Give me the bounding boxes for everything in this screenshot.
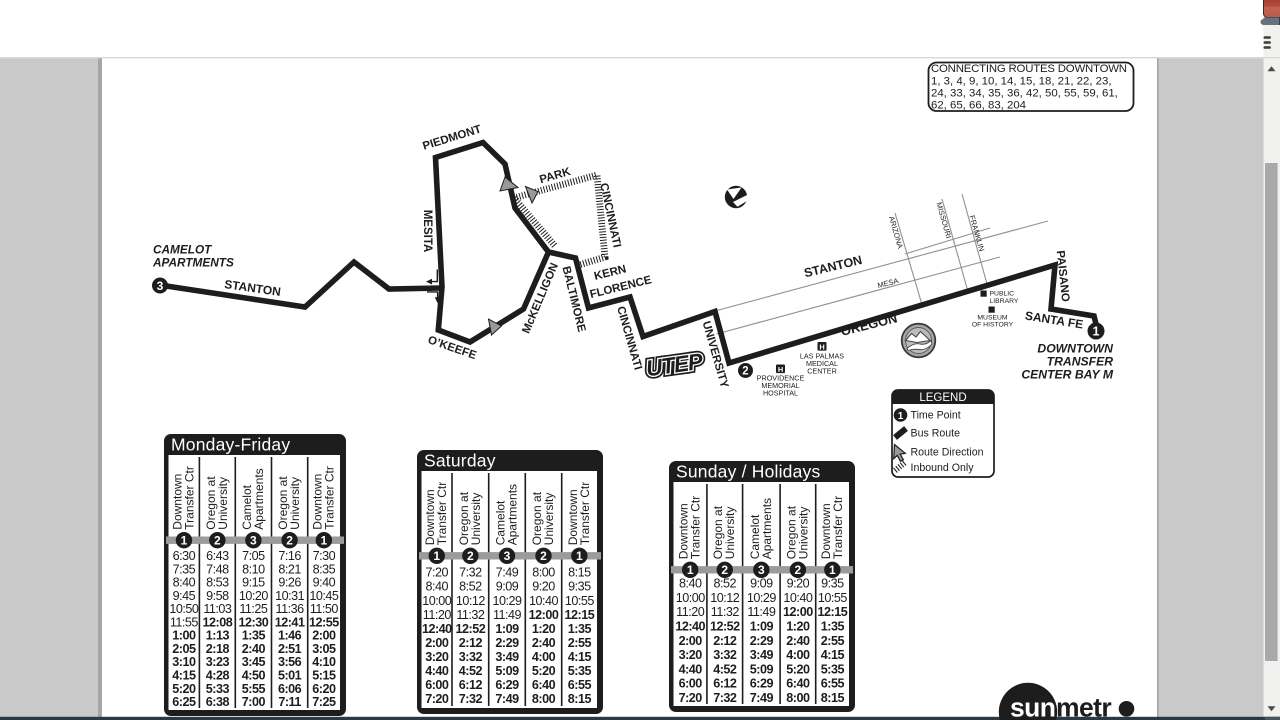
svg-text:1: 1 bbox=[576, 549, 583, 563]
svg-text:12:52: 12:52 bbox=[710, 620, 740, 634]
svg-text:5:55: 5:55 bbox=[242, 682, 266, 696]
svg-text:10:29: 10:29 bbox=[492, 594, 522, 608]
svg-text:Time Point: Time Point bbox=[911, 410, 961, 422]
svg-text:Bus Route: Bus Route bbox=[911, 428, 961, 440]
svg-text:Transfer Ctr: Transfer Ctr bbox=[831, 496, 845, 560]
svg-text:3: 3 bbox=[504, 549, 511, 563]
svg-text:University: University bbox=[288, 477, 302, 530]
svg-text:Transfer Ctr: Transfer Ctr bbox=[182, 466, 196, 530]
svg-text:11:20: 11:20 bbox=[676, 605, 705, 619]
svg-text:12:00: 12:00 bbox=[529, 608, 559, 622]
svg-text:3:32: 3:32 bbox=[713, 648, 737, 662]
svg-text:11:32: 11:32 bbox=[456, 608, 485, 622]
svg-text:5:09: 5:09 bbox=[750, 662, 774, 676]
svg-text:11:36: 11:36 bbox=[276, 602, 305, 616]
svg-text:7:11: 7:11 bbox=[278, 695, 301, 709]
svg-text:3:23: 3:23 bbox=[206, 655, 230, 669]
svg-text:6:25: 6:25 bbox=[172, 695, 196, 709]
svg-text:TRANSFER: TRANSFER bbox=[1047, 355, 1114, 369]
svg-text:11:32: 11:32 bbox=[711, 605, 740, 619]
svg-text:6:40: 6:40 bbox=[532, 678, 556, 692]
svg-text:1:20: 1:20 bbox=[786, 620, 810, 634]
svg-text:metr: metr bbox=[1056, 693, 1111, 720]
svg-text:1:09: 1:09 bbox=[495, 622, 519, 636]
svg-text:24, 33, 34, 35, 36, 42, 50, 55: 24, 33, 34, 35, 36, 42, 50, 55, 59, 61, bbox=[931, 88, 1118, 100]
svg-text:1: 1 bbox=[687, 563, 694, 577]
svg-text:11:49: 11:49 bbox=[747, 605, 776, 619]
svg-text:3:20: 3:20 bbox=[425, 650, 449, 664]
svg-text:6:43: 6:43 bbox=[206, 549, 229, 563]
svg-text:10:55: 10:55 bbox=[565, 594, 595, 608]
svg-text:1:00: 1:00 bbox=[172, 629, 196, 643]
svg-text:Apartments: Apartments bbox=[505, 484, 519, 545]
svg-text:1:09: 1:09 bbox=[750, 620, 774, 634]
svg-text:1:46: 1:46 bbox=[278, 629, 302, 643]
svg-text:6:30: 6:30 bbox=[173, 549, 196, 563]
svg-text:2:55: 2:55 bbox=[568, 636, 592, 650]
svg-text:2:40: 2:40 bbox=[532, 636, 556, 650]
svg-text:10:29: 10:29 bbox=[747, 591, 777, 605]
svg-text:1:35: 1:35 bbox=[242, 629, 266, 643]
svg-text:8:00: 8:00 bbox=[532, 692, 556, 706]
svg-text:12:55: 12:55 bbox=[309, 615, 339, 629]
svg-text:5:20: 5:20 bbox=[172, 682, 196, 696]
svg-text:3:49: 3:49 bbox=[750, 648, 774, 662]
svg-text:2: 2 bbox=[467, 549, 474, 563]
svg-text:1: 1 bbox=[181, 534, 188, 548]
svg-text:MESITA: MESITA bbox=[421, 210, 433, 253]
svg-text:8:52: 8:52 bbox=[714, 577, 737, 591]
svg-text:8:53: 8:53 bbox=[206, 576, 229, 590]
svg-text:CENTER BAY M: CENTER BAY M bbox=[1021, 368, 1113, 382]
svg-text:10:55: 10:55 bbox=[818, 591, 848, 605]
svg-text:LIBRARY: LIBRARY bbox=[990, 298, 1019, 305]
svg-text:6:00: 6:00 bbox=[679, 677, 703, 691]
svg-text:3:10: 3:10 bbox=[172, 655, 196, 669]
svg-text:7:30: 7:30 bbox=[313, 549, 336, 563]
svg-text:9:35: 9:35 bbox=[821, 577, 844, 591]
svg-text:5:35: 5:35 bbox=[568, 664, 592, 678]
svg-text:11:49: 11:49 bbox=[493, 608, 522, 622]
svg-text:3:56: 3:56 bbox=[278, 655, 302, 669]
svg-text:6:29: 6:29 bbox=[495, 678, 519, 692]
svg-text:12:40: 12:40 bbox=[422, 622, 452, 636]
svg-text:Saturday: Saturday bbox=[424, 451, 496, 471]
svg-text:1:13: 1:13 bbox=[206, 629, 230, 643]
svg-text:6:12: 6:12 bbox=[713, 677, 737, 691]
svg-text:12:15: 12:15 bbox=[565, 608, 595, 622]
svg-text:2:40: 2:40 bbox=[242, 642, 266, 656]
svg-text:9:09: 9:09 bbox=[750, 577, 773, 591]
svg-text:1: 1 bbox=[898, 411, 904, 422]
svg-text:7:20: 7:20 bbox=[425, 692, 449, 706]
svg-text:8:00: 8:00 bbox=[786, 691, 810, 705]
svg-text:8:10: 8:10 bbox=[242, 562, 265, 576]
svg-text:4:15: 4:15 bbox=[172, 669, 196, 683]
svg-text:Monday-Friday: Monday-Friday bbox=[171, 435, 290, 455]
svg-text:5:09: 5:09 bbox=[495, 664, 519, 678]
svg-text:2:40: 2:40 bbox=[786, 634, 810, 648]
svg-text:10:45: 10:45 bbox=[309, 589, 339, 603]
svg-text:1: 1 bbox=[321, 534, 328, 548]
svg-text:10:40: 10:40 bbox=[783, 591, 813, 605]
svg-text:2:05: 2:05 bbox=[172, 642, 196, 656]
svg-text:2: 2 bbox=[795, 563, 802, 577]
svg-text:3: 3 bbox=[157, 279, 164, 293]
svg-text:5:20: 5:20 bbox=[786, 662, 810, 676]
svg-text:11:25: 11:25 bbox=[239, 602, 268, 616]
svg-text:10:00: 10:00 bbox=[422, 594, 452, 608]
svg-text:7:35: 7:35 bbox=[173, 562, 196, 576]
svg-text:7:49: 7:49 bbox=[495, 692, 519, 706]
svg-text:4:50: 4:50 bbox=[242, 669, 266, 683]
svg-text:1:20: 1:20 bbox=[532, 622, 556, 636]
svg-text:10:12: 10:12 bbox=[456, 594, 486, 608]
svg-text:University: University bbox=[469, 493, 483, 546]
svg-text:LEGEND: LEGEND bbox=[919, 392, 966, 404]
svg-text:11:03: 11:03 bbox=[203, 602, 232, 616]
svg-text:7:16: 7:16 bbox=[278, 549, 301, 563]
svg-text:H: H bbox=[778, 365, 783, 374]
svg-text:12:30: 12:30 bbox=[239, 615, 269, 629]
svg-text:9:40: 9:40 bbox=[313, 576, 336, 590]
svg-text:5:20: 5:20 bbox=[532, 664, 556, 678]
svg-text:1:35: 1:35 bbox=[821, 620, 845, 634]
svg-text:7:20: 7:20 bbox=[679, 691, 703, 705]
svg-text:12:08: 12:08 bbox=[203, 615, 233, 629]
svg-text:PUBLIC: PUBLIC bbox=[990, 291, 1015, 298]
svg-text:1: 1 bbox=[829, 563, 836, 577]
svg-text:5:33: 5:33 bbox=[206, 682, 230, 696]
svg-text:Transfer Ctr: Transfer Ctr bbox=[578, 482, 592, 546]
svg-text:12:00: 12:00 bbox=[783, 605, 813, 619]
svg-text:7:32: 7:32 bbox=[459, 692, 483, 706]
svg-text:CONNECTING ROUTES DOWNTOWN: CONNECTING ROUTES DOWNTOWN bbox=[931, 63, 1127, 75]
svg-text:Inbound Only: Inbound Only bbox=[911, 462, 975, 474]
svg-text:1:35: 1:35 bbox=[568, 622, 592, 636]
svg-text:3:32: 3:32 bbox=[459, 650, 483, 664]
svg-text:Apartments: Apartments bbox=[252, 468, 266, 529]
svg-text:6:29: 6:29 bbox=[750, 677, 774, 691]
svg-text:62, 65, 66, 83, 204: 62, 65, 66, 83, 204 bbox=[931, 100, 1026, 112]
svg-text:12:41: 12:41 bbox=[275, 615, 305, 629]
svg-text:8:40: 8:40 bbox=[173, 576, 196, 590]
svg-text:4:00: 4:00 bbox=[786, 648, 810, 662]
svg-text:2:18: 2:18 bbox=[206, 642, 230, 656]
svg-text:8:15: 8:15 bbox=[821, 691, 845, 705]
svg-text:MUSEUM: MUSEUM bbox=[977, 315, 1008, 322]
svg-text:2:00: 2:00 bbox=[679, 634, 703, 648]
svg-text:10:50: 10:50 bbox=[169, 602, 199, 616]
svg-text:7:49: 7:49 bbox=[496, 566, 519, 580]
svg-text:9:45: 9:45 bbox=[173, 589, 196, 603]
svg-text:Transfer Ctr: Transfer Ctr bbox=[322, 466, 336, 530]
svg-text:4:52: 4:52 bbox=[459, 664, 483, 678]
svg-text:4:40: 4:40 bbox=[425, 664, 449, 678]
svg-text:11:20: 11:20 bbox=[423, 608, 452, 622]
svg-text:6:06: 6:06 bbox=[278, 682, 302, 696]
svg-text:4:15: 4:15 bbox=[568, 650, 592, 664]
svg-text:7:49: 7:49 bbox=[750, 691, 774, 705]
svg-text:1: 1 bbox=[1093, 325, 1100, 339]
svg-text:CENTER: CENTER bbox=[807, 366, 837, 375]
svg-text:8:15: 8:15 bbox=[568, 566, 591, 580]
svg-text:8:40: 8:40 bbox=[426, 580, 449, 594]
svg-text:2:51: 2:51 bbox=[278, 642, 302, 656]
svg-text:11:55: 11:55 bbox=[170, 615, 199, 629]
svg-text:7:32: 7:32 bbox=[459, 566, 482, 580]
svg-text:3:20: 3:20 bbox=[679, 648, 703, 662]
svg-text:7:20: 7:20 bbox=[426, 566, 449, 580]
svg-text:Sunday / Holidays: Sunday / Holidays bbox=[676, 462, 821, 482]
svg-text:10:20: 10:20 bbox=[239, 589, 269, 603]
svg-text:8:15: 8:15 bbox=[568, 692, 592, 706]
svg-text:Transfer Ctr: Transfer Ctr bbox=[689, 496, 703, 560]
svg-text:12:40: 12:40 bbox=[675, 620, 705, 634]
svg-text:CAMELOT: CAMELOT bbox=[153, 243, 213, 257]
svg-text:University: University bbox=[542, 493, 556, 546]
svg-text:7:25: 7:25 bbox=[312, 695, 336, 709]
svg-text:Apartments: Apartments bbox=[760, 498, 774, 559]
svg-text:4:52: 4:52 bbox=[713, 662, 737, 676]
svg-text:2:12: 2:12 bbox=[459, 636, 483, 650]
svg-text:6:00: 6:00 bbox=[425, 678, 449, 692]
svg-text:4:00: 4:00 bbox=[532, 650, 556, 664]
svg-text:9:20: 9:20 bbox=[532, 580, 555, 594]
svg-text:7:05: 7:05 bbox=[242, 549, 265, 563]
svg-text:7:00: 7:00 bbox=[242, 695, 266, 709]
svg-text:8:35: 8:35 bbox=[313, 562, 336, 576]
svg-text:2:00: 2:00 bbox=[312, 629, 336, 643]
svg-text:8:21: 8:21 bbox=[278, 562, 301, 576]
svg-text:5:35: 5:35 bbox=[821, 662, 845, 676]
svg-text:2:29: 2:29 bbox=[495, 636, 519, 650]
svg-text:12:15: 12:15 bbox=[818, 605, 848, 619]
svg-text:10:31: 10:31 bbox=[275, 589, 305, 603]
svg-text:2: 2 bbox=[721, 563, 728, 577]
svg-text:10:00: 10:00 bbox=[676, 591, 706, 605]
svg-text:5:01: 5:01 bbox=[278, 669, 302, 683]
svg-text:3:05: 3:05 bbox=[312, 642, 336, 656]
svg-text:1: 1 bbox=[433, 549, 440, 563]
svg-text:1, 3, 4, 9, 10, 14, 15, 18, 21: 1, 3, 4, 9, 10, 14, 15, 18, 21, 22, 23, bbox=[931, 75, 1112, 87]
svg-text:Transfer Ctr: Transfer Ctr bbox=[435, 482, 449, 546]
svg-text:4:15: 4:15 bbox=[821, 648, 845, 662]
svg-text:9:35: 9:35 bbox=[568, 580, 591, 594]
svg-text:HOSPITAL: HOSPITAL bbox=[763, 389, 798, 398]
svg-text:3: 3 bbox=[758, 563, 765, 577]
svg-text:9:58: 9:58 bbox=[206, 589, 229, 603]
svg-text:7:32: 7:32 bbox=[713, 691, 737, 705]
svg-text:6:20: 6:20 bbox=[312, 682, 336, 696]
svg-text:DOWNTOWN: DOWNTOWN bbox=[1037, 342, 1114, 356]
svg-text:H: H bbox=[819, 342, 824, 351]
svg-text:6:40: 6:40 bbox=[786, 677, 810, 691]
svg-text:2: 2 bbox=[214, 534, 221, 548]
svg-text:6:55: 6:55 bbox=[568, 678, 592, 692]
svg-text:3:49: 3:49 bbox=[495, 650, 519, 664]
svg-text:9:20: 9:20 bbox=[787, 577, 810, 591]
svg-text:2:55: 2:55 bbox=[821, 634, 845, 648]
svg-text:11:50: 11:50 bbox=[310, 602, 339, 616]
svg-text:6:38: 6:38 bbox=[206, 695, 230, 709]
svg-text:University: University bbox=[796, 507, 810, 560]
svg-text:3:45: 3:45 bbox=[242, 655, 266, 669]
svg-text:7:48: 7:48 bbox=[206, 562, 229, 576]
svg-text:9:15: 9:15 bbox=[242, 576, 265, 590]
svg-text:2:29: 2:29 bbox=[750, 634, 774, 648]
svg-text:5:15: 5:15 bbox=[312, 669, 336, 683]
svg-text:Route Direction: Route Direction bbox=[911, 446, 984, 458]
svg-text:4:10: 4:10 bbox=[312, 655, 336, 669]
svg-text:8:52: 8:52 bbox=[459, 580, 482, 594]
svg-text:12:52: 12:52 bbox=[456, 622, 486, 636]
svg-text:4:28: 4:28 bbox=[206, 669, 230, 683]
svg-text:APARTMENTS: APARTMENTS bbox=[152, 256, 234, 270]
svg-text:6:55: 6:55 bbox=[821, 677, 845, 691]
svg-text:2: 2 bbox=[286, 534, 293, 548]
svg-text:8:00: 8:00 bbox=[532, 566, 555, 580]
svg-text:2: 2 bbox=[540, 549, 547, 563]
svg-text:9:26: 9:26 bbox=[278, 576, 301, 590]
svg-text:OF HISTORY: OF HISTORY bbox=[972, 322, 1014, 329]
svg-text:6:12: 6:12 bbox=[459, 678, 483, 692]
svg-text:9:09: 9:09 bbox=[496, 580, 519, 594]
svg-text:2:12: 2:12 bbox=[713, 634, 737, 648]
svg-text:2: 2 bbox=[742, 366, 748, 378]
svg-text:sun: sun bbox=[1010, 693, 1055, 720]
svg-text:4:40: 4:40 bbox=[679, 662, 703, 676]
svg-text:10:12: 10:12 bbox=[710, 591, 740, 605]
svg-text:8:40: 8:40 bbox=[679, 577, 702, 591]
svg-text:2:00: 2:00 bbox=[425, 636, 449, 650]
svg-text:3: 3 bbox=[250, 534, 257, 548]
svg-text:10:40: 10:40 bbox=[529, 594, 559, 608]
svg-text:University: University bbox=[723, 507, 737, 560]
svg-text:University: University bbox=[216, 477, 230, 530]
